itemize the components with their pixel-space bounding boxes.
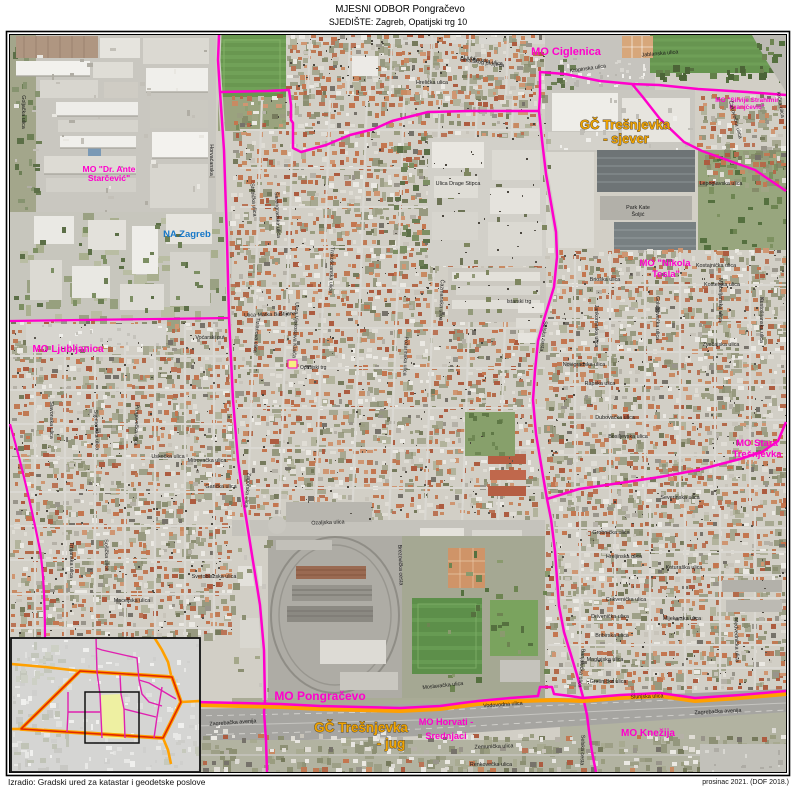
svg-text:Grobnička ulica: Grobnička ulica <box>592 530 629 536</box>
svg-text:Bosiljevska ulica: Bosiljevska ulica <box>608 434 648 440</box>
svg-text:Lepoglavska ulica: Lepoglavska ulica <box>700 181 743 187</box>
svg-text:Ulica Drage Stipca: Ulica Drage Stipca <box>436 181 481 187</box>
svg-text:Čazmanska ulica: Čazmanska ulica <box>437 279 445 320</box>
svg-text:Garička ulica: Garička ulica <box>205 484 236 490</box>
svg-text:Horvaćanska: Horvaćanska <box>208 144 214 175</box>
svg-text:MJESNI ODBOR Pongračevo: MJESNI ODBOR Pongračevo <box>335 4 465 15</box>
svg-text:Izradio: Gradski ured za katas: Izradio: Gradski ured za katastar i geod… <box>8 777 206 787</box>
svg-text:Maceljska ulica: Maceljska ulica <box>114 598 151 604</box>
svg-text:Trešnjevka: Trešnjevka <box>732 449 782 460</box>
svg-text:Šoljić: Šoljić <box>632 211 645 218</box>
svg-text:Tesla": Tesla" <box>652 269 680 280</box>
svg-text:Trnjanska ulica: Trnjanska ulica <box>68 542 74 578</box>
svg-text:GČ Trešnjevka: GČ Trešnjevka <box>580 117 671 132</box>
svg-text:Kustošijanska ulica: Kustošijanska ulica <box>758 297 764 343</box>
svg-text:Grešnička ulica: Grešnička ulica <box>590 679 627 685</box>
svg-text:MO "Silvije Strahimir: MO "Silvije Strahimir <box>715 97 779 104</box>
svg-text:MO Horvati -: MO Horvati - <box>419 717 474 727</box>
svg-text:- jug: - jug <box>377 736 406 751</box>
svg-text:Slavonska ulica: Slavonska ulica <box>48 401 54 438</box>
svg-text:MO Stara: MO Stara <box>736 438 778 449</box>
svg-text:Renkovečka ulica: Renkovečka ulica <box>470 762 512 768</box>
svg-text:Koturaška ulica: Koturaška ulica <box>666 565 703 571</box>
svg-text:Starčević": Starčević" <box>88 173 130 183</box>
svg-text:Selska cesta: Selska cesta <box>578 735 585 766</box>
svg-text:Golubovečka ulica: Golubovečka ulica <box>654 296 660 340</box>
svg-text:NA Zagreb: NA Zagreb <box>163 229 211 240</box>
svg-text:Park Kate: Park Kate <box>626 205 650 211</box>
svg-text:Maglajska ulica: Maglajska ulica <box>587 657 624 663</box>
svg-text:Istarski trg: Istarski trg <box>507 299 532 305</box>
svg-text:Uskočka ulica: Uskočka ulica <box>151 454 184 460</box>
svg-text:Ozaljska ulica: Ozaljska ulica <box>311 519 344 526</box>
svg-text:GČ Trešnjevka: GČ Trešnjevka <box>314 720 408 735</box>
svg-text:SJEDIŠTE: Zagreb, Opatijski tr: SJEDIŠTE: Zagreb, Opatijski trg 10 <box>329 17 467 27</box>
svg-text:Mihovljanska ulica: Mihovljanska ulica <box>717 278 723 322</box>
svg-text:Hrelićka ulica: Hrelićka ulica <box>416 80 448 86</box>
svg-text:Goljačka ulica: Goljačka ulica <box>20 95 26 129</box>
svg-text:prosinac 2021. (DOF 2018.): prosinac 2021. (DOF 2018.) <box>702 779 789 786</box>
svg-text:Mitrovačka ulica: Mitrovačka ulica <box>188 458 227 464</box>
svg-text:Drivenička ulica: Drivenička ulica <box>591 614 629 620</box>
svg-text:Kostajnička ulica: Kostajnička ulica <box>696 263 736 269</box>
svg-text:Rapska ulica: Rapska ulica <box>585 381 616 387</box>
svg-text:Brioška ulica: Brioška ulica <box>590 277 621 283</box>
svg-text:Mljekarska ulica: Mljekarska ulica <box>663 616 701 622</box>
svg-text:MO Knežija: MO Knežija <box>621 728 675 739</box>
svg-text:Svetoblažska ulica: Svetoblažska ulica <box>192 574 237 580</box>
svg-text:Hreljinska ulica: Hreljinska ulica <box>606 554 642 560</box>
svg-text:Voćarski put: Voćarski put <box>195 335 225 341</box>
svg-text:Slunjska ulica: Slunjska ulica <box>630 693 663 700</box>
svg-text:Crikvenička ulica: Crikvenička ulica <box>606 597 646 603</box>
svg-text:Sošička ulica: Sošička ulica <box>102 539 109 571</box>
svg-text:Opatijski trg: Opatijski trg <box>300 365 327 371</box>
svg-text:MO Ciglenica: MO Ciglenica <box>531 46 602 58</box>
svg-text:Dubovačka ulica: Dubovačka ulica <box>595 415 635 421</box>
svg-text:- sjever: - sjever <box>603 131 649 146</box>
svg-text:MO Pongračevo: MO Pongračevo <box>274 689 365 703</box>
svg-text:Zvečajska ulica: Zvečajska ulica <box>703 342 740 348</box>
svg-text:Srednjaci: Srednjaci <box>425 731 466 741</box>
svg-text:MO Ljubljanica: MO Ljubljanica <box>32 344 104 355</box>
svg-text:Severinska ulica: Severinska ulica <box>660 495 699 501</box>
svg-text:Novigradska ulica: Novigradska ulica <box>563 362 606 368</box>
svg-text:Bribirska ulica: Bribirska ulica <box>595 633 629 639</box>
svg-text:MO "Nikola: MO "Nikola <box>640 258 692 269</box>
svg-text:Jankomirska ulica: Jankomirska ulica <box>593 305 599 348</box>
